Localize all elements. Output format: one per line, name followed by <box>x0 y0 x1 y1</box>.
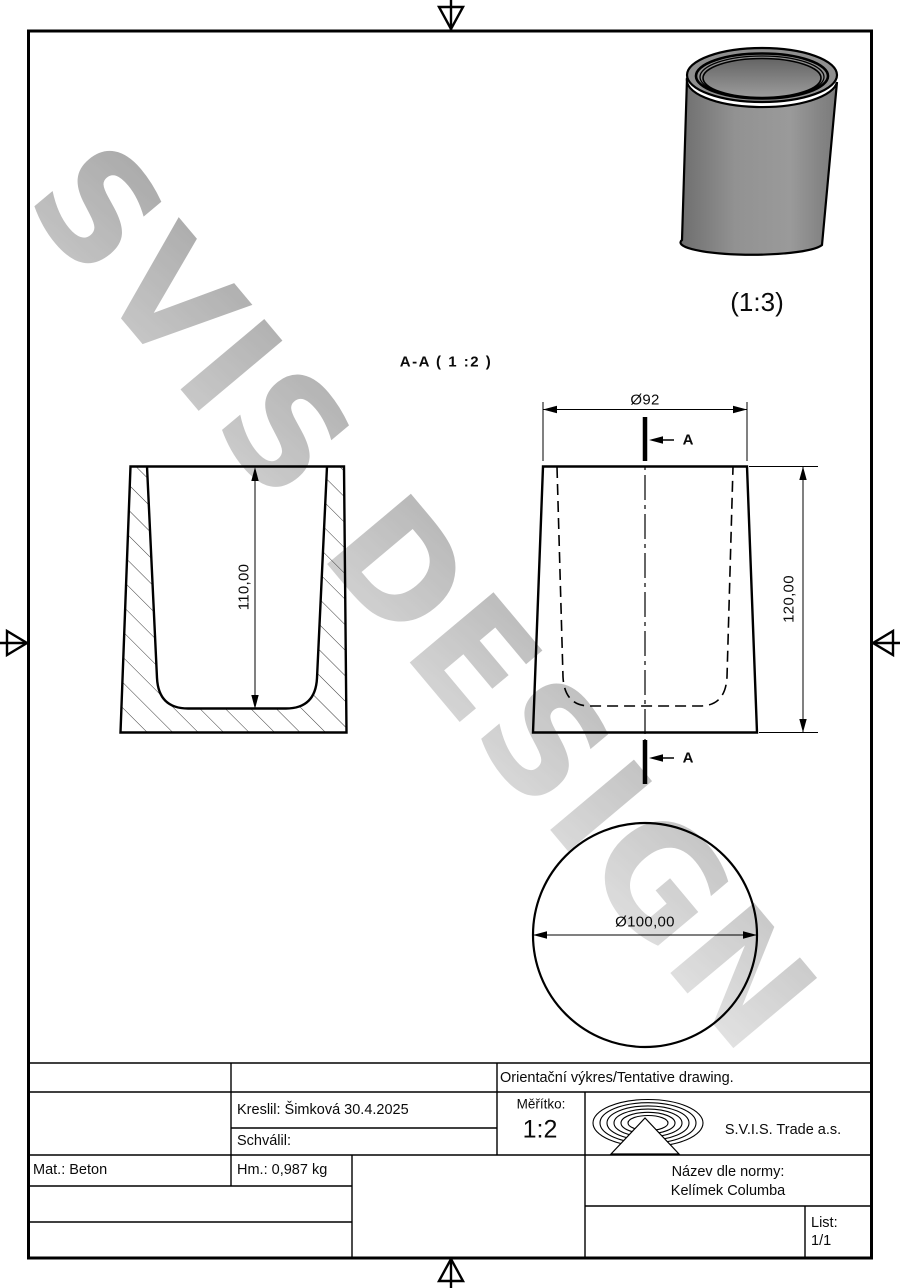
scale-label: Měřítko: <box>517 1097 566 1111</box>
dim-top-diameter: Ø92 <box>630 393 659 408</box>
iso-scale-label: (1:3) <box>730 289 783 315</box>
registration-mark-top <box>439 0 463 30</box>
company-name: S.V.I.S. Trade a.s. <box>725 1123 841 1138</box>
section-view-title: A-A ( 1 :2 ) <box>400 355 492 370</box>
cup-body <box>680 78 837 255</box>
registration-mark-left <box>0 631 28 655</box>
registration-mark-bottom <box>439 1258 463 1288</box>
drawing-canvas: SVIS DESIGN <box>0 0 900 1288</box>
sheet-value: 1/1 <box>811 1234 831 1249</box>
norm-name-label: Název dle normy: <box>672 1165 785 1180</box>
sheet-label: List: <box>811 1216 838 1231</box>
dim-inner-depth: 110,00 <box>237 564 252 611</box>
registration-mark-right <box>872 631 900 655</box>
iso-view <box>680 48 837 255</box>
weight: Hm.: 0,987 kg <box>237 1163 327 1178</box>
drawing-page: SVIS DESIGN <box>0 0 900 1288</box>
tentative-note: Orientační výkres/Tentative drawing. <box>500 1071 734 1086</box>
material: Mat.: Beton <box>33 1163 107 1178</box>
cut-label-top: A <box>683 433 694 448</box>
norm-name-value: Kelímek Columba <box>671 1184 785 1199</box>
cup-cavity <box>703 59 821 98</box>
dim-height: 120,00 <box>782 575 797 623</box>
drawn-by: Kreslil: Šimková 30.4.2025 <box>237 1103 409 1118</box>
scale-value: 1:2 <box>523 1118 558 1143</box>
cut-label-bottom: A <box>683 751 694 766</box>
approved-by: Schválil: <box>237 1134 291 1149</box>
company-logo <box>593 1100 703 1155</box>
section-cut-line <box>645 417 674 784</box>
title-block-grid <box>28 1063 872 1258</box>
dim-bottom-diameter: Ø100,00 <box>615 915 675 930</box>
